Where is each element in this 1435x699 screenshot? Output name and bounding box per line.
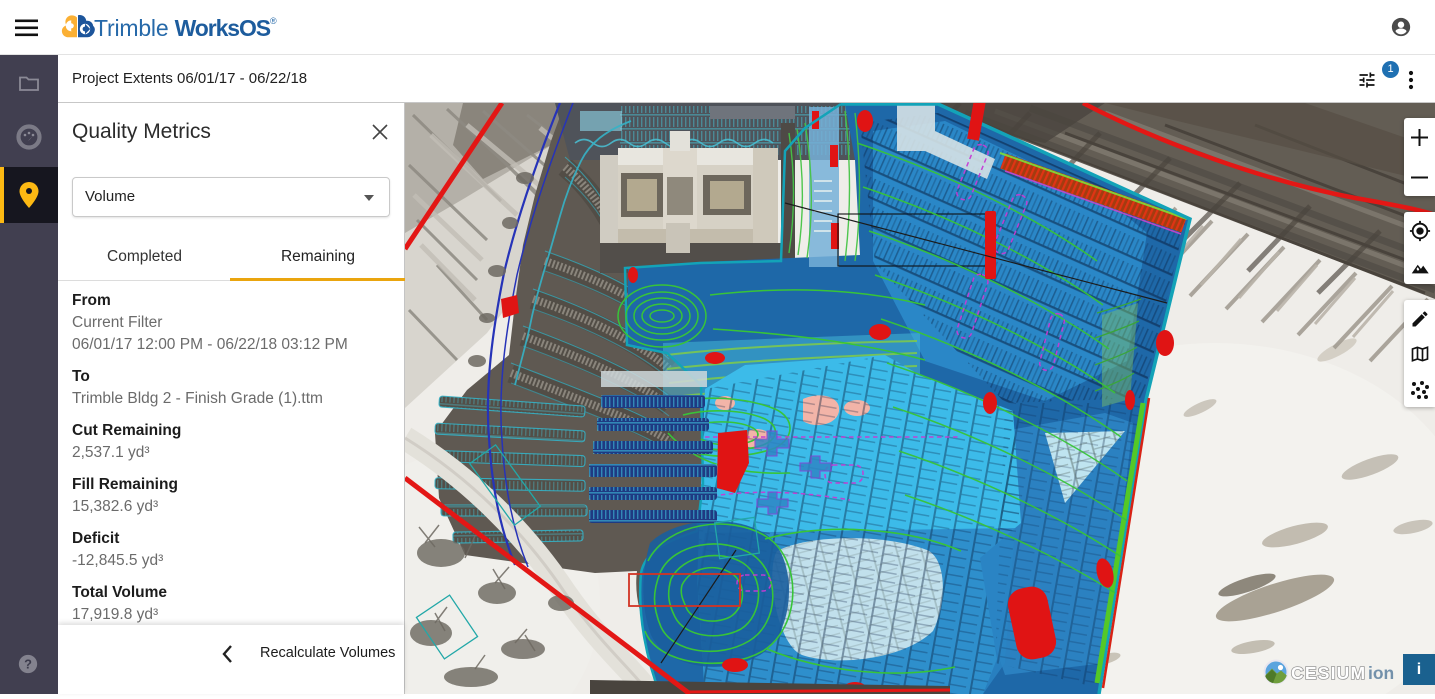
svg-text:CESIUM: CESIUM: [1291, 663, 1366, 683]
svg-text:?: ?: [24, 657, 32, 672]
svg-text:ion: ion: [1368, 663, 1394, 683]
